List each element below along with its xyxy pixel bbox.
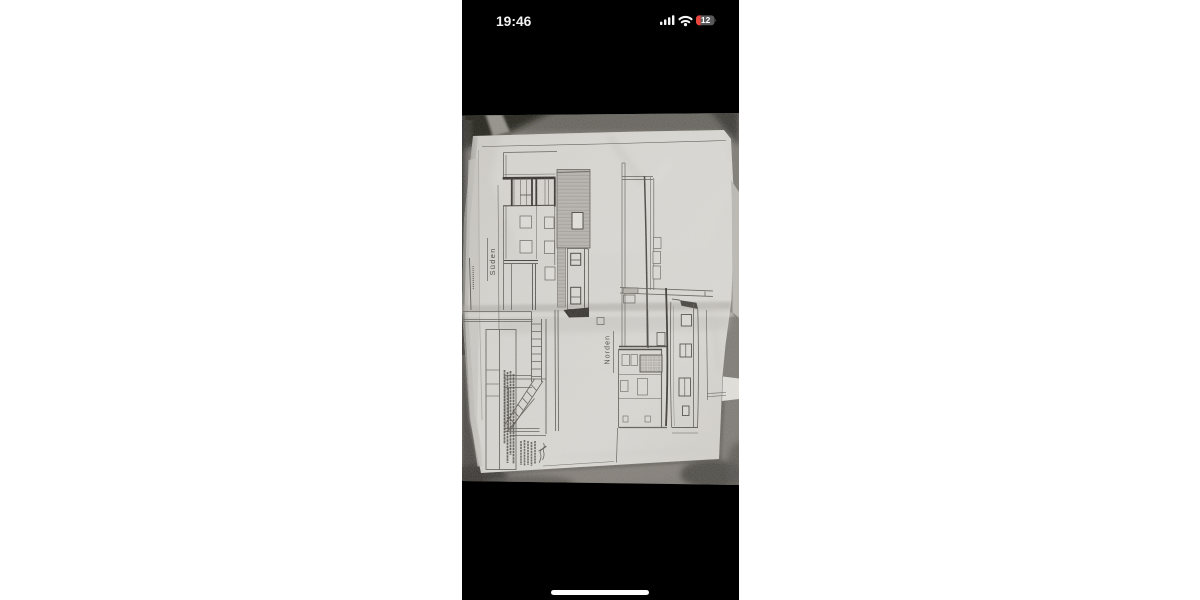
- svg-text:12: 12: [701, 15, 711, 25]
